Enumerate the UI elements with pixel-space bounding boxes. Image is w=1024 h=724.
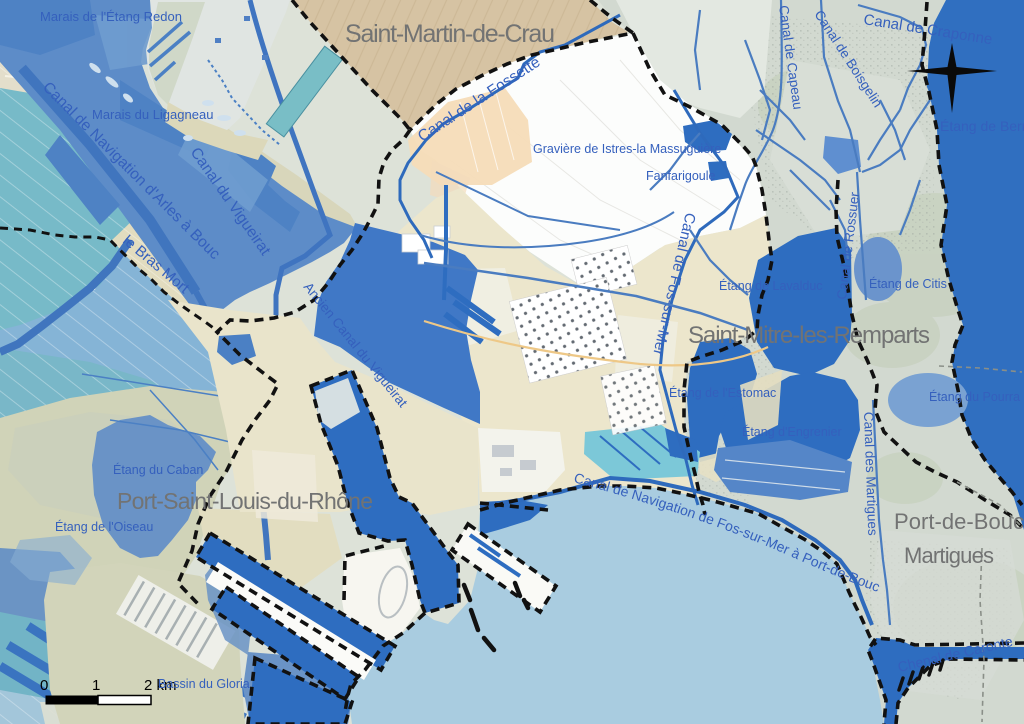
svg-text:Fanfarigoule: Fanfarigoule (646, 169, 716, 183)
svg-text:Marais de l'Étang Redon: Marais de l'Étang Redon (40, 9, 182, 24)
svg-text:Étang de Citis: Étang de Citis (869, 276, 947, 291)
svg-text:Port-de-Bouc: Port-de-Bouc (894, 509, 1024, 534)
svg-text:Bassin du Gloria: Bassin du Gloria (158, 677, 250, 691)
svg-text:Étang de l'Oiseau: Étang de l'Oiseau (55, 519, 153, 534)
svg-text:0: 0 (40, 677, 48, 694)
svg-text:Étang de l'Estomac: Étang de l'Estomac (669, 385, 776, 400)
svg-text:Étang d'Engrenier: Étang d'Engrenier (742, 424, 842, 439)
svg-text:Saint-Mitre-les-Remparts: Saint-Mitre-les-Remparts (688, 322, 930, 349)
svg-text:Étang du Caban: Étang du Caban (113, 462, 203, 477)
svg-text:Étang de Lavalduc: Étang de Lavalduc (719, 278, 823, 293)
svg-text:1: 1 (92, 677, 100, 694)
svg-text:Martigues: Martigues (904, 543, 994, 568)
svg-text:Port-Saint-Louis-du-Rhône: Port-Saint-Louis-du-Rhône (117, 488, 373, 514)
svg-text:Marais du Ligagneau: Marais du Ligagneau (92, 107, 213, 122)
svg-text:Saint-Martin-de-Crau: Saint-Martin-de-Crau (345, 20, 555, 48)
svg-text:Gravière de Istres-la Massugui: Gravière de Istres-la Massuguière (533, 142, 721, 156)
svg-text:Étang du Pourra: Étang du Pourra (929, 389, 1020, 404)
svg-text:Étang de Berre: Étang de Berre (940, 118, 1024, 134)
